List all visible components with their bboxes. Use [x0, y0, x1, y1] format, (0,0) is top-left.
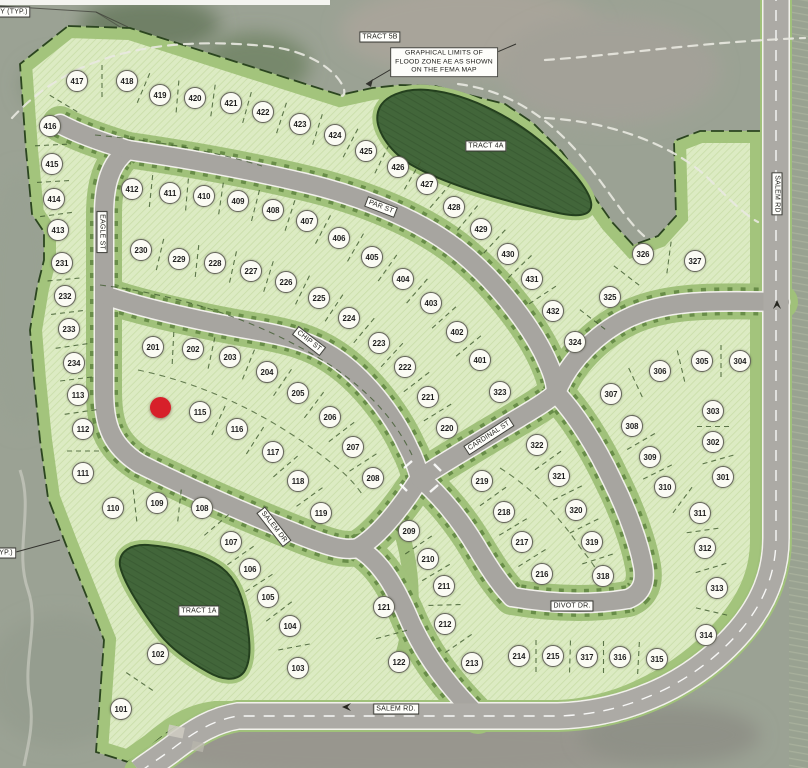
lot-marker-107: 107 [220, 531, 242, 553]
lot-marker-410: 410 [193, 185, 215, 207]
lot-marker-325: 325 [599, 286, 621, 308]
lot-marker-112: 112 [72, 418, 94, 440]
lot-marker-228: 228 [204, 252, 226, 274]
lot-marker-413: 413 [47, 219, 69, 241]
lot-marker-402: 402 [446, 321, 468, 343]
lot-marker-408: 408 [262, 199, 284, 221]
lot-marker-321: 321 [548, 465, 570, 487]
plat-map: 1011021031041051061071081091101111121131… [0, 0, 808, 768]
lot-marker-409: 409 [227, 190, 249, 212]
lot-marker-213: 213 [461, 652, 483, 674]
lot-marker-327: 327 [684, 250, 706, 272]
lot-marker-304: 304 [729, 350, 751, 372]
lot-marker-423: 423 [289, 113, 311, 135]
lot-marker-105: 105 [257, 586, 279, 608]
lot-marker-405: 405 [361, 246, 383, 268]
lot-marker-326: 326 [632, 243, 654, 265]
lot-marker-204: 204 [256, 361, 278, 383]
lot-marker-303: 303 [702, 400, 724, 422]
lot-marker-227: 227 [240, 260, 262, 282]
lot-marker-415: 415 [41, 153, 63, 175]
lot-marker-419: 419 [149, 84, 171, 106]
lot-marker-230: 230 [130, 239, 152, 261]
lot-marker-221: 221 [417, 386, 439, 408]
lot-marker-216: 216 [531, 563, 553, 585]
lot-marker-313: 313 [706, 577, 728, 599]
lot-marker-302: 302 [702, 431, 724, 453]
lot-marker-110: 110 [102, 497, 124, 519]
lot-marker-102: 102 [147, 643, 169, 665]
lot-marker-208: 208 [362, 467, 384, 489]
lot-marker-322: 322 [526, 434, 548, 456]
lot-marker-225: 225 [308, 287, 330, 309]
lot-marker-424: 424 [324, 124, 346, 146]
lot-marker-407: 407 [296, 210, 318, 232]
lot-marker-430: 430 [497, 243, 519, 265]
lot-marker-314: 314 [695, 624, 717, 646]
lot-marker-118: 118 [287, 470, 309, 492]
lot-marker-115: 115 [189, 401, 211, 423]
lot-marker-315: 315 [646, 648, 668, 670]
lot-marker-305: 305 [691, 350, 713, 372]
lot-marker-231: 231 [51, 252, 73, 274]
lot-marker-119: 119 [310, 502, 332, 524]
lot-marker-234: 234 [63, 352, 85, 374]
lot-marker-416: 416 [39, 115, 61, 137]
lot-marker-428: 428 [443, 196, 465, 218]
lot-marker-219: 219 [471, 470, 493, 492]
lot-marker-301: 301 [712, 466, 734, 488]
lot-marker-209: 209 [398, 520, 420, 542]
lot-marker-121: 121 [373, 596, 395, 618]
lot-marker-310: 310 [654, 476, 676, 498]
lot-marker-203: 203 [219, 346, 241, 368]
lot-marker-202: 202 [182, 338, 204, 360]
lot-marker-214: 214 [508, 645, 530, 667]
lot-marker-429: 429 [470, 218, 492, 240]
lot-marker-412: 412 [121, 178, 143, 200]
lot-marker-309: 309 [639, 446, 661, 468]
lot-marker-206: 206 [319, 406, 341, 428]
lot-marker-117: 117 [262, 441, 284, 463]
lot-marker-411: 411 [159, 182, 181, 204]
lot-marker-307: 307 [600, 383, 622, 405]
lot-marker-104: 104 [279, 615, 301, 637]
subject-lot-marker [150, 397, 171, 418]
lot-marker-418: 418 [116, 70, 138, 92]
lot-marker-224: 224 [338, 307, 360, 329]
lot-marker-212: 212 [434, 613, 456, 635]
lot-marker-103: 103 [287, 657, 309, 679]
lot-marker-222: 222 [394, 356, 416, 378]
lot-marker-215: 215 [542, 645, 564, 667]
lot-marker-324: 324 [564, 331, 586, 353]
lot-marker-211: 211 [433, 575, 455, 597]
lot-marker-229: 229 [168, 248, 190, 270]
lot-marker-432: 432 [542, 300, 564, 322]
lot-marker-422: 422 [252, 101, 274, 123]
lot-marker-116: 116 [226, 418, 248, 440]
lot-marker-220: 220 [436, 417, 458, 439]
lot-marker-417: 417 [66, 70, 88, 92]
lot-marker-427: 427 [416, 173, 438, 195]
lot-marker-109: 109 [146, 492, 168, 514]
lot-marker-403: 403 [420, 292, 442, 314]
lot-marker-306: 306 [649, 360, 671, 382]
lot-marker-111: 111 [72, 462, 94, 484]
lot-marker-414: 414 [43, 188, 65, 210]
lot-marker-311: 311 [689, 502, 711, 524]
lot-marker-316: 316 [609, 646, 631, 668]
lot-marker-210: 210 [417, 548, 439, 570]
lot-marker-218: 218 [493, 501, 515, 523]
lot-marker-201: 201 [142, 336, 164, 358]
lot-marker-420: 420 [184, 87, 206, 109]
lot-marker-106: 106 [239, 558, 261, 580]
lot-marker-323: 323 [489, 381, 511, 403]
lot-marker-233: 233 [58, 318, 80, 340]
lot-marker-426: 426 [387, 156, 409, 178]
lot-marker-404: 404 [392, 268, 414, 290]
lot-marker-205: 205 [287, 382, 309, 404]
lot-marker-320: 320 [565, 499, 587, 521]
lot-marker-308: 308 [621, 415, 643, 437]
lot-marker-318: 318 [592, 565, 614, 587]
lot-markers-layer: 1011021031041051061071081091101111121131… [0, 0, 808, 768]
lot-marker-207: 207 [342, 436, 364, 458]
lot-marker-101: 101 [110, 698, 132, 720]
lot-marker-312: 312 [694, 537, 716, 559]
lot-marker-431: 431 [521, 268, 543, 290]
lot-marker-113: 113 [67, 384, 89, 406]
lot-marker-232: 232 [54, 285, 76, 307]
lot-marker-421: 421 [220, 92, 242, 114]
lot-marker-317: 317 [576, 646, 598, 668]
lot-marker-406: 406 [328, 227, 350, 249]
lot-marker-108: 108 [191, 497, 213, 519]
lot-marker-217: 217 [511, 531, 533, 553]
lot-marker-401: 401 [469, 349, 491, 371]
lot-marker-226: 226 [275, 271, 297, 293]
lot-marker-319: 319 [581, 531, 603, 553]
lot-marker-425: 425 [355, 140, 377, 162]
lot-marker-223: 223 [368, 332, 390, 354]
lot-marker-122: 122 [388, 651, 410, 673]
